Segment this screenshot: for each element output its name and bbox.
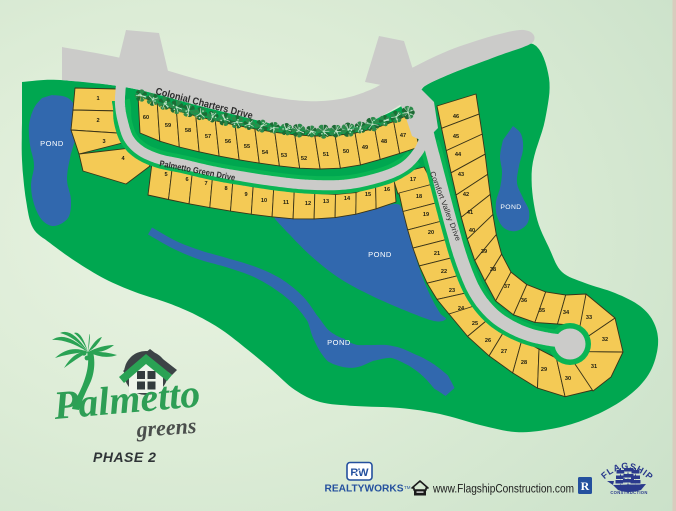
- svg-text:11: 11: [283, 200, 289, 206]
- svg-text:47: 47: [400, 133, 406, 139]
- svg-text:7: 7: [204, 181, 207, 187]
- svg-text:32: 32: [602, 337, 608, 343]
- svg-text:57: 57: [205, 134, 211, 140]
- svg-text:31: 31: [591, 364, 597, 370]
- svg-text:42: 42: [463, 192, 469, 198]
- svg-text:18: 18: [416, 194, 422, 200]
- svg-text:10: 10: [261, 198, 267, 204]
- svg-text:59: 59: [165, 123, 171, 129]
- svg-text:21: 21: [434, 251, 440, 257]
- svg-text:43: 43: [458, 172, 464, 178]
- svg-text:30: 30: [565, 376, 571, 382]
- svg-text:POND: POND: [40, 139, 64, 148]
- svg-text:49: 49: [362, 145, 368, 151]
- svg-text:3: 3: [102, 139, 105, 145]
- svg-text:35: 35: [539, 308, 545, 314]
- svg-text:58: 58: [185, 128, 191, 134]
- svg-text:53: 53: [281, 153, 287, 159]
- svg-text:27: 27: [501, 349, 507, 355]
- svg-text:26: 26: [485, 338, 491, 344]
- svg-text:45: 45: [453, 134, 459, 140]
- svg-text:34: 34: [563, 310, 570, 316]
- svg-text:REALTYWORKS: REALTYWORKS: [325, 483, 404, 495]
- svg-text:51: 51: [323, 152, 329, 158]
- svg-text:23: 23: [449, 288, 455, 294]
- svg-text:2: 2: [96, 118, 99, 124]
- svg-text:12: 12: [305, 201, 311, 207]
- svg-text:POND: POND: [500, 204, 521, 211]
- svg-text:PHASE 2: PHASE 2: [93, 449, 156, 465]
- svg-text:22: 22: [441, 269, 447, 275]
- svg-text:www.FlagshipConstruction.com: www.FlagshipConstruction.com: [432, 482, 574, 496]
- svg-text:POND: POND: [368, 250, 392, 259]
- svg-text:56: 56: [225, 139, 231, 145]
- svg-text:CONSTRUCTION: CONSTRUCTION: [610, 490, 647, 495]
- svg-text:9: 9: [244, 192, 247, 198]
- svg-text:RW: RW: [350, 467, 369, 479]
- svg-text:13: 13: [323, 199, 329, 205]
- svg-text:40: 40: [469, 228, 475, 234]
- svg-text:6: 6: [185, 177, 188, 183]
- svg-text:55: 55: [244, 144, 250, 150]
- svg-text:5: 5: [164, 172, 167, 178]
- svg-text:44: 44: [455, 152, 462, 158]
- svg-text:19: 19: [423, 212, 429, 218]
- svg-text:39: 39: [481, 249, 487, 255]
- svg-text:15: 15: [365, 192, 371, 198]
- svg-text:46: 46: [453, 114, 459, 120]
- svg-text:8: 8: [224, 186, 227, 192]
- svg-text:29: 29: [541, 367, 547, 373]
- svg-text:33: 33: [586, 315, 592, 321]
- svg-text:greens: greens: [135, 413, 197, 442]
- svg-text:14: 14: [344, 196, 351, 202]
- svg-text:28: 28: [521, 360, 527, 366]
- svg-text:37: 37: [504, 284, 510, 290]
- svg-text:52: 52: [301, 156, 307, 162]
- svg-text:60: 60: [143, 115, 149, 121]
- svg-text:48: 48: [381, 139, 387, 145]
- svg-text:54: 54: [262, 150, 269, 156]
- svg-text:36: 36: [521, 298, 527, 304]
- svg-text:POND: POND: [327, 338, 351, 347]
- svg-text:38: 38: [490, 267, 496, 273]
- svg-text:TM: TM: [404, 485, 411, 490]
- svg-text:1: 1: [96, 96, 99, 102]
- svg-text:25: 25: [472, 321, 478, 327]
- svg-text:17: 17: [410, 177, 416, 183]
- svg-text:16: 16: [384, 187, 390, 193]
- svg-text:41: 41: [467, 210, 473, 216]
- svg-text:50: 50: [343, 149, 349, 155]
- svg-text:20: 20: [428, 230, 434, 236]
